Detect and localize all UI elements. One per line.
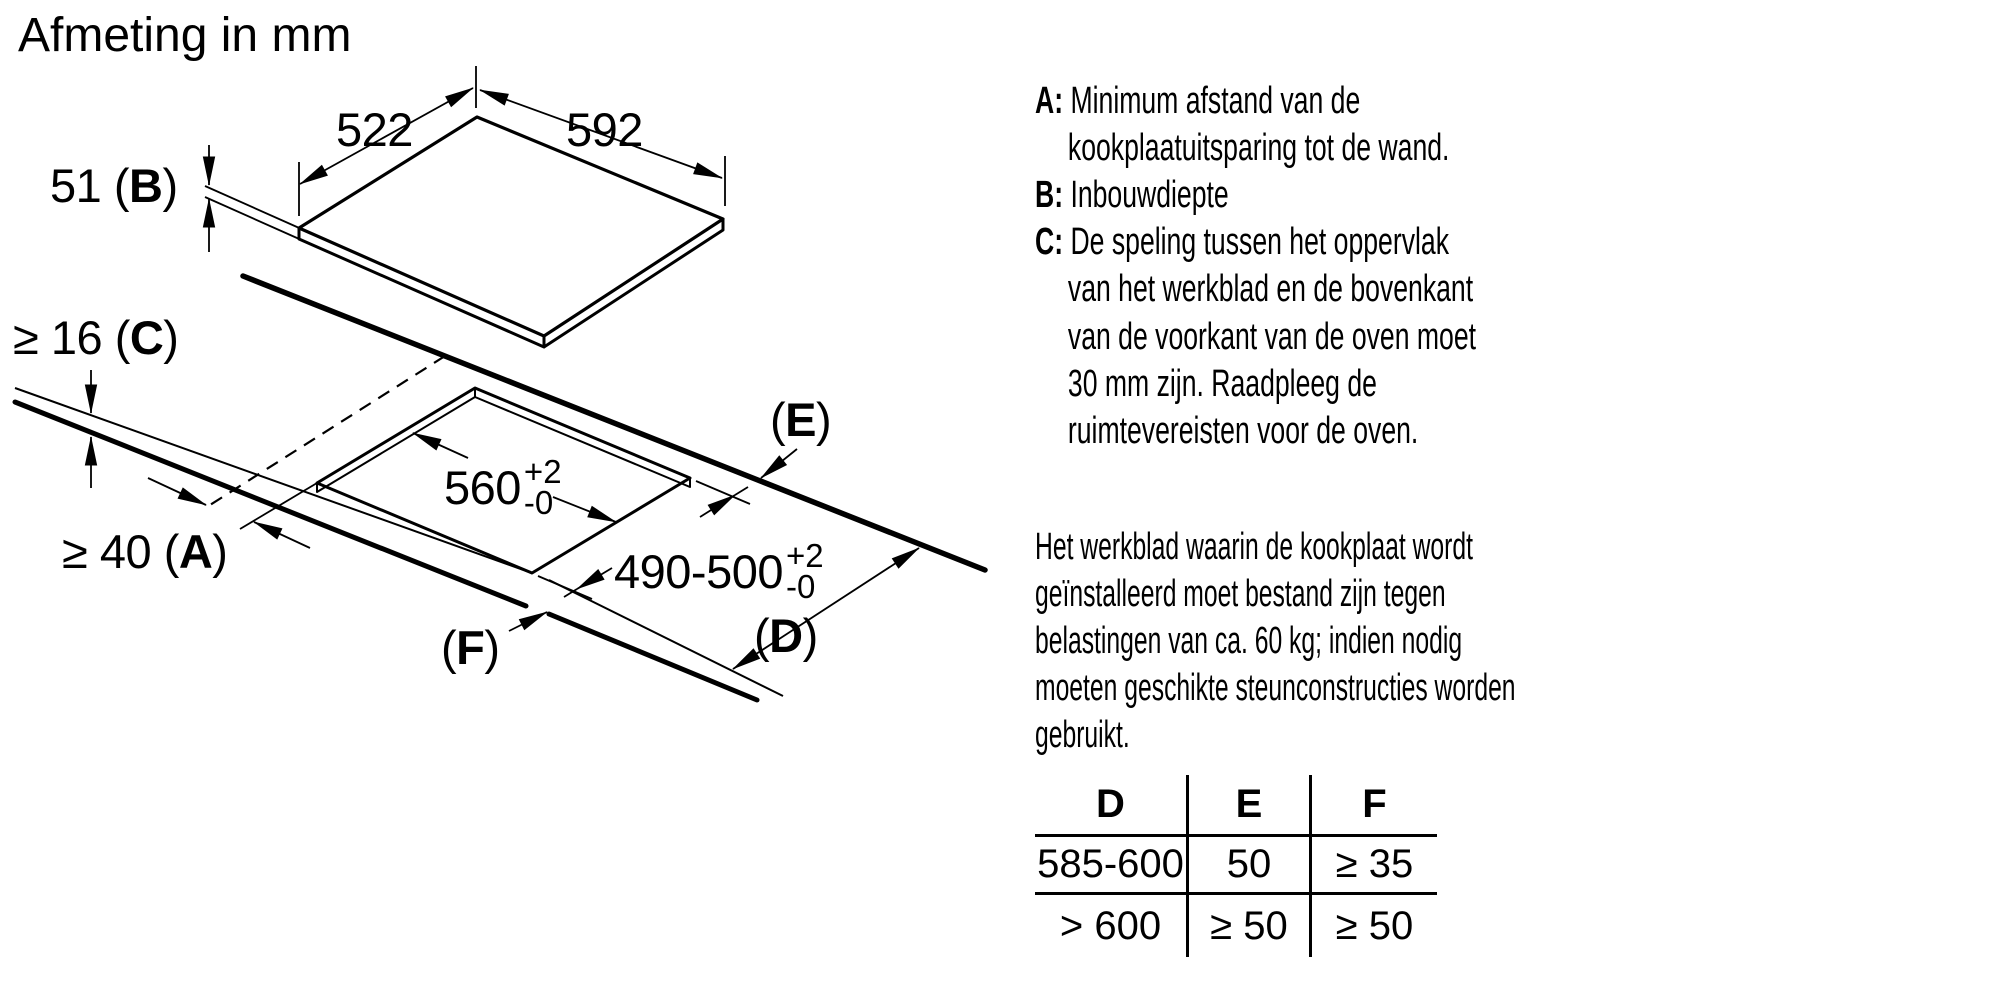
wall-line	[243, 276, 985, 570]
worktop-load-note: Het werkblad waarin de kookplaat wordt g…	[1035, 524, 1536, 760]
ref-label-e: (E)	[770, 396, 831, 443]
dim-label-cutout-width: 560+2-0	[444, 456, 562, 519]
legend-item-b: B: Inbouwdiepte	[1035, 172, 1490, 219]
installation-diagram-page: Afmeting in mm	[0, 0, 2000, 1000]
table-header-e: E	[1189, 775, 1312, 837]
table-cell-r2-e: ≥ 50	[1189, 895, 1312, 957]
dim-label-a: ≥ 40 (A)	[62, 528, 227, 575]
dim-label-592: 592	[566, 106, 643, 153]
leader-f	[509, 612, 547, 631]
ref-label-d: (D)	[754, 612, 818, 659]
table-cell-r2-f: ≥ 50	[1312, 895, 1437, 957]
dim-label-cutout-depth: 490-500+2-0	[614, 540, 824, 603]
table-cell-r1-f: ≥ 35	[1312, 837, 1437, 895]
table-cell-r1-e: 50	[1189, 837, 1312, 895]
ref-label-f: (F)	[441, 624, 500, 671]
legend-item-a: A: Minimum afstand van de kookplaatuitsp…	[1035, 78, 1490, 172]
table-cell-r1-d: 585-600	[1035, 837, 1189, 895]
dim-label-522: 522	[336, 106, 413, 153]
table-header-f: F	[1312, 775, 1437, 837]
dim-label-b: 51 (B)	[50, 162, 178, 209]
alignment-dashed-line	[210, 356, 445, 505]
legend: A: Minimum afstand van de kookplaatuitsp…	[1035, 78, 1490, 455]
dim-label-c: ≥ 16 (C)	[13, 314, 178, 361]
def-dimension-table: D E F 585-600 50 ≥ 35 > 600 ≥ 50 ≥ 50	[1035, 775, 1437, 957]
legend-item-c: C: De speling tussen het oppervlak van h…	[1035, 219, 1490, 455]
table-cell-r2-d: > 600	[1035, 895, 1189, 957]
table-header-d: D	[1035, 775, 1189, 837]
leader-e	[761, 449, 797, 478]
